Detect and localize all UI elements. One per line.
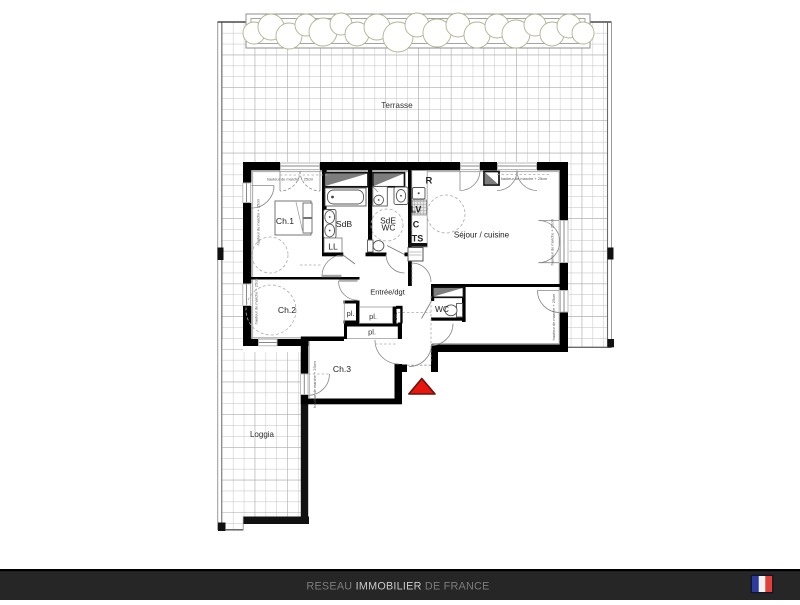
svg-text:Loggia: Loggia — [250, 430, 275, 439]
svg-text:LV: LV — [411, 205, 422, 215]
svg-text:LL: LL — [328, 242, 338, 252]
svg-text:RESEAU IMMOBILIER DE FRANCE: RESEAU IMMOBILIER DE FRANCE — [306, 581, 489, 593]
svg-text:hauteur de marche + 25cm: hauteur de marche + 25cm — [312, 361, 317, 408]
svg-text:hauteur de marche + 25cm: hauteur de marche + 25cm — [501, 176, 548, 181]
svg-text:Ch.2: Ch.2 — [278, 305, 296, 315]
svg-text:pl.: pl. — [368, 328, 376, 337]
svg-text:C: C — [413, 220, 420, 230]
svg-text:Ch.1: Ch.1 — [276, 216, 294, 226]
svg-text:R: R — [426, 175, 433, 186]
svg-text:SdB: SdB — [336, 219, 353, 229]
svg-text:GTL: GTL — [393, 312, 398, 321]
svg-text:Terrasse: Terrasse — [381, 101, 413, 110]
svg-text:WC: WC — [382, 223, 396, 233]
svg-text:pl.: pl. — [369, 312, 377, 321]
svg-text:hauteur de marche + 25cm: hauteur de marche + 25cm — [256, 199, 261, 246]
svg-text:Ch.3: Ch.3 — [333, 364, 351, 374]
svg-text:hauteur de marche + 25cm: hauteur de marche + 25cm — [254, 278, 259, 325]
svg-text:pl.: pl. — [347, 309, 355, 318]
svg-text:hauteur de marche + 25cm: hauteur de marche + 25cm — [551, 294, 556, 341]
svg-text:Séjour / cuisine: Séjour / cuisine — [454, 231, 510, 240]
svg-text:hauteur de marche + 25cm: hauteur de marche + 25cm — [550, 219, 555, 266]
svg-text:WC: WC — [435, 304, 449, 314]
svg-text:Entrée/dgt: Entrée/dgt — [370, 288, 406, 297]
svg-text:TS: TS — [412, 234, 424, 244]
svg-text:hauteur de marche + 25cm: hauteur de marche + 25cm — [267, 177, 314, 182]
